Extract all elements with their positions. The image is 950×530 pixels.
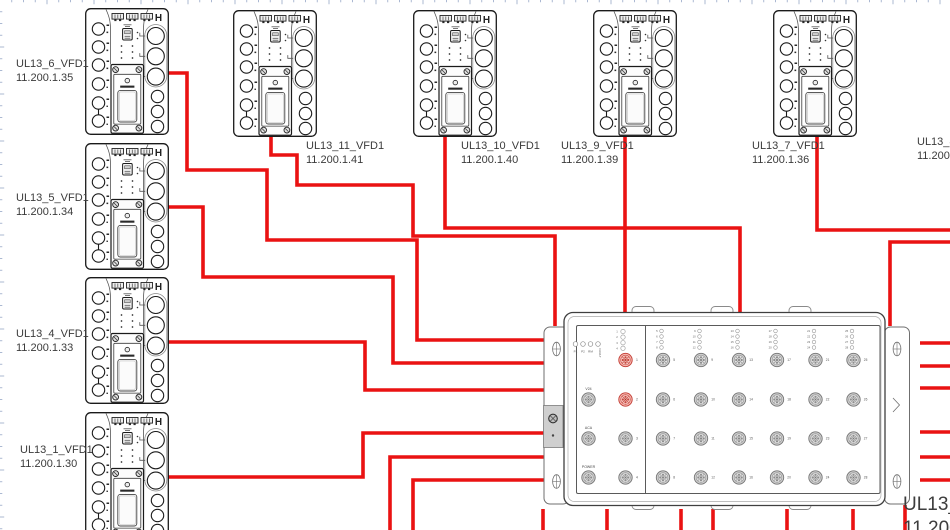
port-led-label: 16 bbox=[731, 346, 735, 350]
aux-port-POWER bbox=[582, 471, 595, 484]
switch-port-6 bbox=[656, 393, 669, 406]
port-number: 1 bbox=[636, 358, 638, 362]
port-number: 9 bbox=[711, 358, 713, 362]
switch-port-18 bbox=[770, 393, 783, 406]
port-number: 17 bbox=[787, 358, 791, 362]
port-led-label: 10 bbox=[693, 335, 697, 339]
cable-UL13_8[interactable] bbox=[890, 242, 950, 326]
port-led-22 bbox=[812, 335, 816, 339]
cable-UL13_4[interactable] bbox=[168, 342, 546, 390]
switch-port-3 bbox=[619, 432, 632, 445]
port-number: 13 bbox=[749, 358, 753, 362]
port-number: 5 bbox=[673, 358, 675, 362]
port-led-12 bbox=[698, 346, 702, 350]
port-led-19 bbox=[774, 340, 778, 344]
port-led-23 bbox=[812, 340, 816, 344]
port-led-9 bbox=[698, 329, 702, 333]
port-number: 20 bbox=[787, 476, 791, 480]
port-number: 25 bbox=[864, 358, 868, 362]
port-led-label: 25 bbox=[845, 329, 849, 333]
port-led-27 bbox=[850, 340, 854, 344]
switch-port-22 bbox=[809, 393, 822, 406]
vfd-device-UL13_9_VFD1[interactable] bbox=[594, 11, 677, 137]
vfd-device-UL13_6_VFD1[interactable] bbox=[86, 9, 169, 135]
port-number: 28 bbox=[864, 476, 868, 480]
switch-port-24 bbox=[809, 471, 822, 484]
port-number: 26 bbox=[864, 398, 868, 402]
switch-port-27 bbox=[847, 432, 860, 445]
port-number: 19 bbox=[787, 437, 791, 441]
port-led-6 bbox=[660, 335, 664, 339]
diagram-canvas: H bbox=[0, 0, 950, 530]
port-led-26 bbox=[850, 335, 854, 339]
indicator-led-P1 bbox=[573, 342, 578, 347]
switch-port-8 bbox=[656, 471, 669, 484]
port-led-label: 26 bbox=[845, 335, 849, 339]
vfd-device-UL13_10_VFD1[interactable] bbox=[414, 11, 497, 137]
switch-port-5 bbox=[656, 353, 669, 366]
bracket-clip-dot bbox=[552, 434, 554, 436]
ethernet-switch[interactable]: P1P2RMFAULT12341234V24ACAPOWER5566778899… bbox=[544, 307, 910, 510]
switch-port-20 bbox=[770, 471, 783, 484]
switch-name: UL13_ bbox=[903, 493, 950, 517]
indicator-label: FAULT bbox=[598, 349, 602, 358]
port-led-7 bbox=[660, 340, 664, 344]
cable-from-below-2[interactable] bbox=[413, 480, 546, 530]
port-led-14 bbox=[736, 335, 740, 339]
switch-ip: 11.200.1. bbox=[903, 517, 950, 530]
status-led-3 bbox=[621, 341, 625, 345]
port-number: 15 bbox=[749, 437, 753, 441]
aux-port-label: POWER bbox=[582, 465, 596, 469]
port-led-28 bbox=[850, 346, 854, 350]
switch-port-14 bbox=[732, 393, 745, 406]
switch-panel bbox=[577, 326, 881, 494]
port-led-label: 18 bbox=[769, 335, 773, 339]
vfd-device-UL13_11_VFD1[interactable] bbox=[234, 11, 317, 137]
port-number: 4 bbox=[636, 476, 638, 480]
switch-port-7 bbox=[656, 432, 669, 445]
switch-port-17 bbox=[770, 353, 783, 366]
indicator-label: P1 bbox=[574, 350, 578, 354]
port-led-label: 13 bbox=[731, 329, 735, 333]
vfd-device-UL13_4_VFD1[interactable] bbox=[86, 278, 169, 404]
status-led-4 bbox=[621, 346, 625, 350]
switch-port-12 bbox=[694, 471, 707, 484]
port-led-13 bbox=[736, 329, 740, 333]
switch-port-9 bbox=[694, 353, 707, 366]
port-led-label: 20 bbox=[769, 346, 773, 350]
port-led-label: 21 bbox=[807, 329, 811, 333]
port-led-label: 22 bbox=[807, 335, 811, 339]
port-led-18 bbox=[774, 335, 778, 339]
port-led-label: 11 bbox=[693, 340, 696, 344]
port-number: 16 bbox=[749, 476, 753, 480]
port-number: 18 bbox=[787, 398, 791, 402]
port-number: 12 bbox=[711, 476, 715, 480]
aux-port-label: V24 bbox=[585, 387, 591, 391]
switch-port-2 bbox=[619, 393, 632, 406]
port-led-label: 14 bbox=[731, 335, 735, 339]
cable-UL13_1[interactable] bbox=[168, 433, 546, 477]
port-led-25 bbox=[850, 329, 854, 333]
status-led-1 bbox=[621, 329, 625, 333]
port-number: 10 bbox=[711, 398, 715, 402]
indicator-led-P2 bbox=[581, 342, 586, 347]
port-number: 7 bbox=[673, 437, 675, 441]
switch-port-23 bbox=[809, 432, 822, 445]
port-led-8 bbox=[660, 346, 664, 350]
port-number: 2 bbox=[636, 398, 638, 402]
switch-port-28 bbox=[847, 471, 860, 484]
port-led-label: 12 bbox=[693, 346, 697, 350]
port-led-17 bbox=[774, 329, 778, 333]
switch-port-4 bbox=[619, 471, 632, 484]
switch-port-10 bbox=[694, 393, 707, 406]
cable-UL13_10[interactable] bbox=[445, 137, 740, 312]
port-led-10 bbox=[698, 335, 702, 339]
indicator-label: RM bbox=[588, 350, 593, 354]
switch-port-26 bbox=[847, 393, 860, 406]
port-led-24 bbox=[812, 346, 816, 350]
switch-label: UL13_ 11.200.1. bbox=[903, 493, 950, 530]
switch-port-25 bbox=[847, 353, 860, 366]
indicator-label: P2 bbox=[581, 350, 585, 354]
switch-port-11 bbox=[694, 432, 707, 445]
vfd-device-UL13_1_VFD1[interactable] bbox=[86, 413, 169, 530]
port-led-label: 24 bbox=[807, 346, 811, 350]
port-number: 6 bbox=[673, 398, 675, 402]
cable-UL13_11[interactable] bbox=[271, 137, 555, 326]
switch-port-19 bbox=[770, 432, 783, 445]
port-number: 22 bbox=[826, 398, 830, 402]
switch-port-15 bbox=[732, 432, 745, 445]
port-led-16 bbox=[736, 346, 740, 350]
vfd-device-UL13_7_VFD1[interactable] bbox=[774, 11, 857, 137]
port-number: 24 bbox=[826, 476, 830, 480]
port-led-label: 15 bbox=[731, 340, 735, 344]
vfd-device-UL13_5_VFD1[interactable] bbox=[86, 144, 169, 270]
port-number: 23 bbox=[826, 437, 830, 441]
aux-port-V24 bbox=[582, 393, 595, 406]
port-number: 21 bbox=[826, 358, 830, 362]
switch-port-1 bbox=[619, 353, 632, 366]
port-led-5 bbox=[660, 329, 664, 333]
diagram-scene: H bbox=[0, 0, 950, 530]
cable-UL13_7[interactable] bbox=[817, 137, 950, 230]
port-number: 3 bbox=[636, 437, 638, 441]
port-number: 14 bbox=[749, 398, 753, 402]
indicator-led-FAULT bbox=[596, 342, 601, 347]
port-led-label: 23 bbox=[807, 340, 811, 344]
switch-port-16 bbox=[732, 471, 745, 484]
status-led-2 bbox=[621, 335, 625, 339]
port-number: 27 bbox=[864, 437, 868, 441]
switch-port-13 bbox=[732, 353, 745, 366]
port-led-20 bbox=[774, 346, 778, 350]
port-led-15 bbox=[736, 340, 740, 344]
indicator-led-RM bbox=[588, 342, 593, 347]
switch-port-21 bbox=[809, 353, 822, 366]
port-led-label: 27 bbox=[845, 340, 849, 344]
port-led-11 bbox=[698, 340, 702, 344]
port-number: 8 bbox=[673, 476, 675, 480]
bracket-clip bbox=[544, 406, 564, 448]
port-led-label: 19 bbox=[769, 340, 773, 344]
aux-port-ACA bbox=[582, 432, 595, 445]
port-number: 11 bbox=[711, 437, 715, 441]
port-led-label: 28 bbox=[845, 346, 849, 350]
port-led-label: 17 bbox=[769, 329, 773, 333]
aux-port-label: ACA bbox=[585, 426, 593, 430]
port-led-21 bbox=[812, 329, 816, 333]
